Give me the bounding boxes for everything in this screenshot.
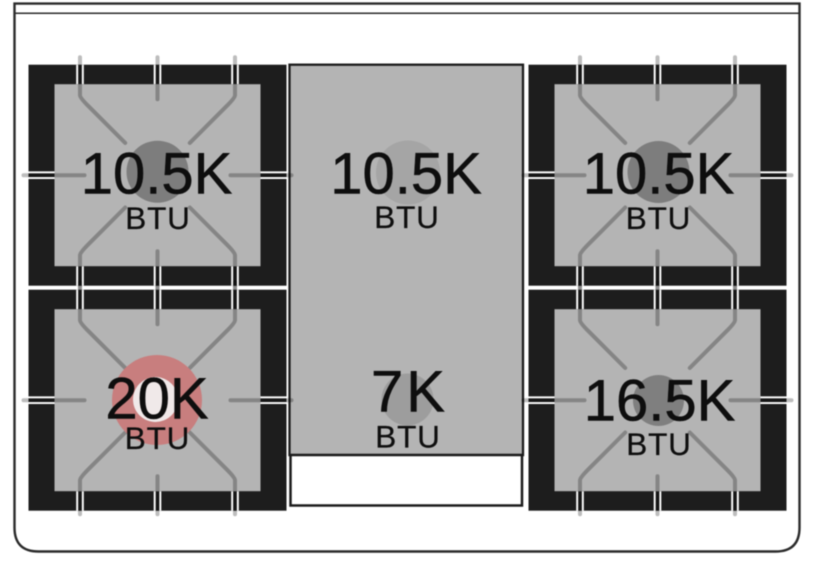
svg-text:7K: 7K bbox=[371, 360, 448, 425]
svg-text:BTU: BTU bbox=[375, 419, 440, 455]
svg-text:BTU: BTU bbox=[125, 420, 190, 456]
svg-text:BTU: BTU bbox=[626, 426, 691, 462]
svg-text:10.5K: 10.5K bbox=[330, 142, 482, 207]
svg-text:16.5K: 16.5K bbox=[584, 369, 736, 434]
svg-text:BTU: BTU bbox=[125, 200, 190, 236]
svg-text:BTU: BTU bbox=[626, 200, 691, 236]
svg-text:10.5K: 10.5K bbox=[583, 142, 735, 207]
svg-text:BTU: BTU bbox=[374, 199, 439, 235]
svg-text:10.5K: 10.5K bbox=[81, 142, 233, 207]
